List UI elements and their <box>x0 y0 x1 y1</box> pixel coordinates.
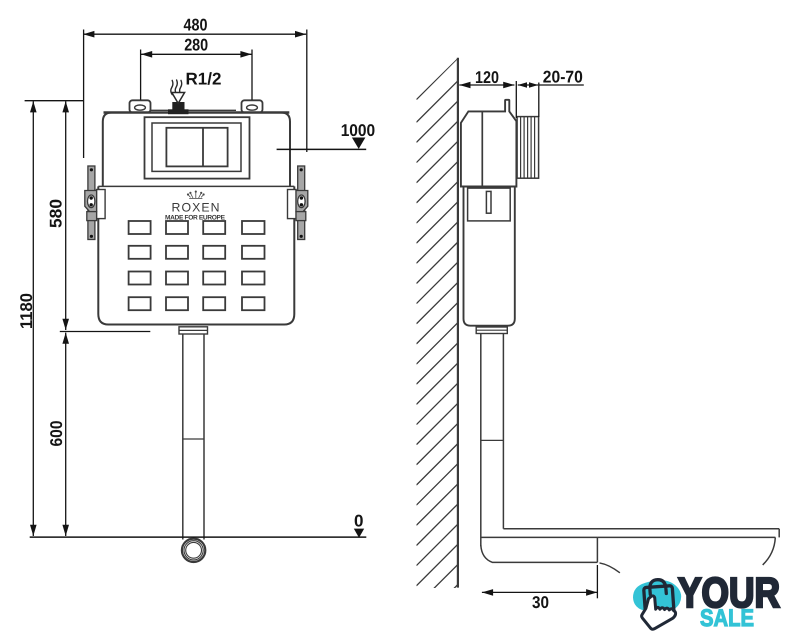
svg-text:1000: 1000 <box>341 121 376 140</box>
svg-text:1180: 1180 <box>17 293 36 329</box>
svg-text:480: 480 <box>184 15 208 34</box>
svg-text:R1/2: R1/2 <box>186 70 222 89</box>
svg-text:120: 120 <box>475 68 499 87</box>
svg-text:580: 580 <box>46 199 65 228</box>
svg-text:MADE FOR EUROPE: MADE FOR EUROPE <box>165 215 226 222</box>
svg-text:0: 0 <box>354 511 363 530</box>
svg-text:SALE: SALE <box>700 605 754 632</box>
svg-text:600: 600 <box>47 421 66 447</box>
svg-text:30: 30 <box>532 593 549 612</box>
svg-text:280: 280 <box>184 36 208 55</box>
svg-text:20-70: 20-70 <box>543 68 583 87</box>
svg-text:ROXEN: ROXEN <box>172 201 220 215</box>
